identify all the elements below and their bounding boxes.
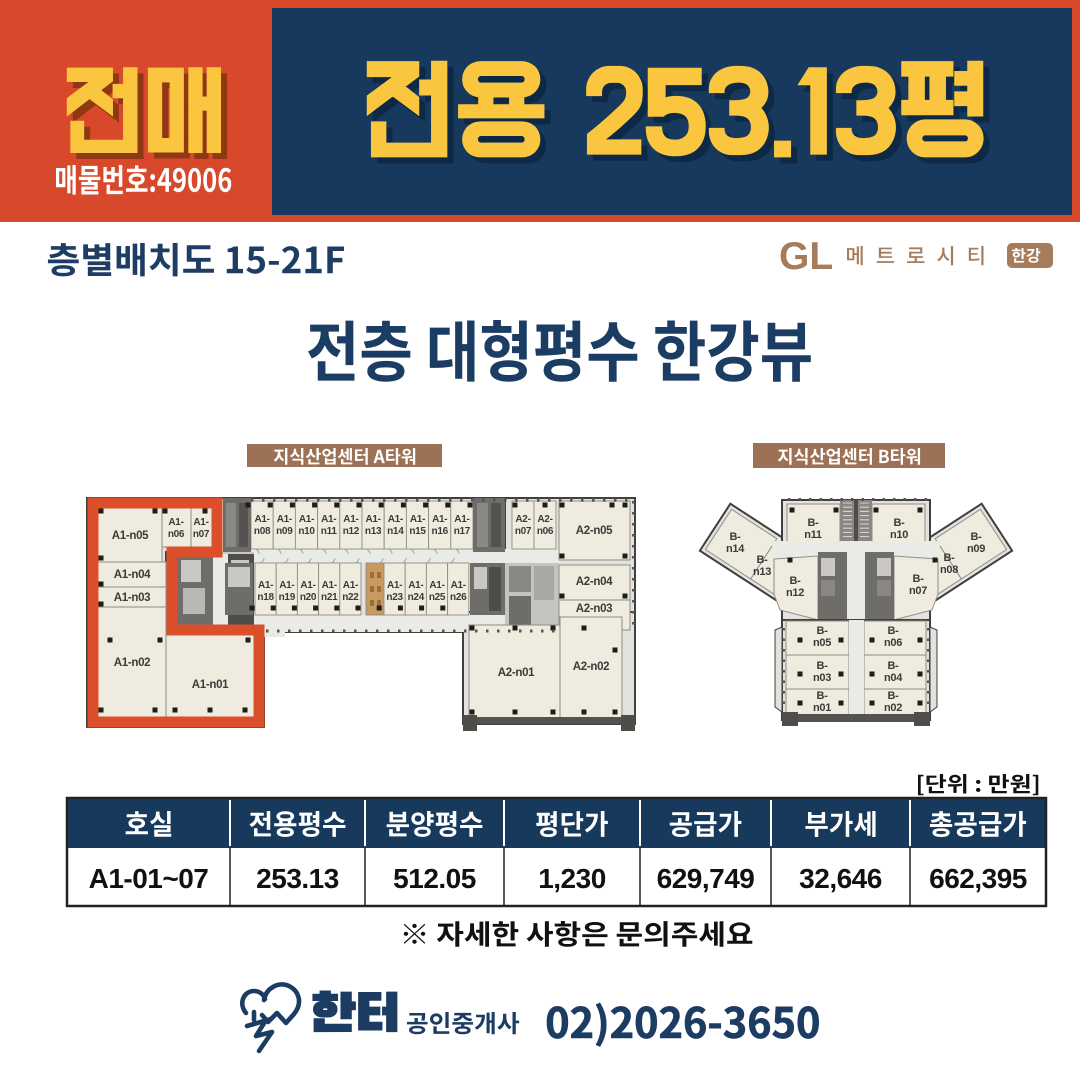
svg-text:1,230: 1,230 — [538, 863, 606, 894]
svg-text:A1-: A1- — [343, 514, 358, 525]
svg-text:n11: n11 — [804, 529, 822, 541]
svg-text:A2-: A2- — [515, 514, 530, 525]
svg-text:A1-: A1- — [322, 580, 337, 591]
svg-text:A1-: A1- — [254, 514, 269, 525]
svg-text:n13: n13 — [365, 526, 382, 537]
svg-text:n06: n06 — [168, 529, 185, 540]
svg-text:n07: n07 — [515, 526, 532, 537]
svg-text:GL: GL — [779, 235, 833, 278]
svg-text:A1-: A1- — [258, 580, 273, 591]
svg-text:n11: n11 — [321, 526, 338, 537]
svg-text:A1-: A1- — [388, 514, 403, 525]
svg-text:B-: B- — [970, 531, 982, 543]
svg-text:n06: n06 — [537, 526, 554, 537]
svg-text:n13: n13 — [753, 566, 771, 578]
svg-text:A1-: A1- — [277, 514, 292, 525]
svg-text:n25: n25 — [429, 592, 446, 603]
svg-text:512.05: 512.05 — [393, 863, 476, 894]
svg-text:A1-: A1- — [429, 580, 444, 591]
svg-text:A2-n03: A2-n03 — [576, 603, 613, 615]
svg-text:n14: n14 — [387, 526, 404, 537]
svg-text:A1-: A1- — [321, 514, 336, 525]
svg-text:A1-: A1- — [365, 514, 380, 525]
svg-text:A1-: A1- — [454, 514, 469, 525]
svg-text:n01: n01 — [813, 702, 831, 714]
svg-text:A2-: A2- — [537, 514, 552, 525]
svg-text:B-: B- — [816, 625, 828, 637]
svg-text:n07: n07 — [909, 585, 927, 597]
svg-text:B-: B- — [807, 517, 819, 529]
svg-text:n23: n23 — [386, 592, 403, 603]
svg-text:A1-: A1- — [343, 580, 358, 591]
svg-text:n06: n06 — [884, 637, 902, 649]
svg-text:B-: B- — [887, 690, 899, 702]
svg-text:n02: n02 — [884, 702, 902, 714]
svg-text:A1-n01: A1-n01 — [192, 679, 229, 691]
svg-text:A2-n01: A2-n01 — [498, 667, 535, 679]
svg-text:n05: n05 — [813, 637, 831, 649]
svg-text:n04: n04 — [884, 672, 903, 684]
svg-text:B-: B- — [729, 531, 741, 543]
svg-text:A1-01~07: A1-01~07 — [89, 863, 209, 894]
svg-text:n14: n14 — [726, 543, 745, 555]
svg-text:A1-: A1- — [300, 580, 315, 591]
svg-text:B-: B- — [912, 573, 924, 585]
svg-text:n09: n09 — [967, 543, 985, 555]
svg-text:B-: B- — [943, 552, 955, 564]
svg-text:n20: n20 — [300, 592, 317, 603]
svg-text:A1-: A1- — [193, 517, 208, 528]
svg-text:B-: B- — [887, 625, 899, 637]
svg-text:n17: n17 — [454, 526, 471, 537]
svg-text:A1-n03: A1-n03 — [114, 592, 151, 604]
svg-text:629,749: 629,749 — [657, 863, 755, 894]
svg-text:A1-n04: A1-n04 — [114, 569, 151, 581]
svg-text:n19: n19 — [279, 592, 296, 603]
svg-text:A1-: A1- — [299, 514, 314, 525]
svg-text:A1-: A1- — [387, 580, 402, 591]
svg-text:n21: n21 — [321, 592, 338, 603]
svg-text:n26: n26 — [450, 592, 467, 603]
svg-text:A1-: A1- — [451, 580, 466, 591]
svg-text:B-: B- — [816, 690, 828, 702]
svg-text:B-: B- — [816, 660, 828, 672]
svg-text:n16: n16 — [432, 526, 449, 537]
svg-text:A1-: A1- — [408, 580, 423, 591]
svg-text:n08: n08 — [254, 526, 271, 537]
svg-text:A1-: A1- — [410, 514, 425, 525]
svg-text:n24: n24 — [408, 592, 425, 603]
svg-text:A1-: A1- — [279, 580, 294, 591]
svg-text:n18: n18 — [257, 592, 274, 603]
svg-text:n15: n15 — [409, 526, 426, 537]
svg-text:B-: B- — [893, 517, 905, 529]
svg-text:n08: n08 — [940, 564, 958, 576]
svg-text:A1-n05: A1-n05 — [112, 530, 149, 542]
svg-text:A1-n02: A1-n02 — [114, 657, 151, 669]
svg-text:253.13: 253.13 — [256, 863, 339, 894]
svg-text:A2-n04: A2-n04 — [576, 576, 613, 588]
svg-text:n12: n12 — [343, 526, 360, 537]
svg-text:n12: n12 — [786, 587, 804, 599]
svg-text:662,395: 662,395 — [929, 863, 1027, 894]
svg-text:n09: n09 — [276, 526, 293, 537]
svg-text:n22: n22 — [342, 592, 359, 603]
svg-text:n03: n03 — [813, 672, 831, 684]
svg-text:n10: n10 — [298, 526, 315, 537]
svg-text:B-: B- — [887, 660, 899, 672]
svg-text:n10: n10 — [890, 529, 908, 541]
svg-text:A2-n02: A2-n02 — [573, 661, 610, 673]
svg-text:B-: B- — [756, 554, 768, 566]
svg-text:32,646: 32,646 — [799, 863, 882, 894]
svg-text:A2-n05: A2-n05 — [576, 525, 613, 537]
svg-text:A1-: A1- — [432, 514, 447, 525]
svg-text:n07: n07 — [193, 529, 210, 540]
svg-text:B-: B- — [789, 575, 801, 587]
svg-text:A1-: A1- — [168, 517, 183, 528]
